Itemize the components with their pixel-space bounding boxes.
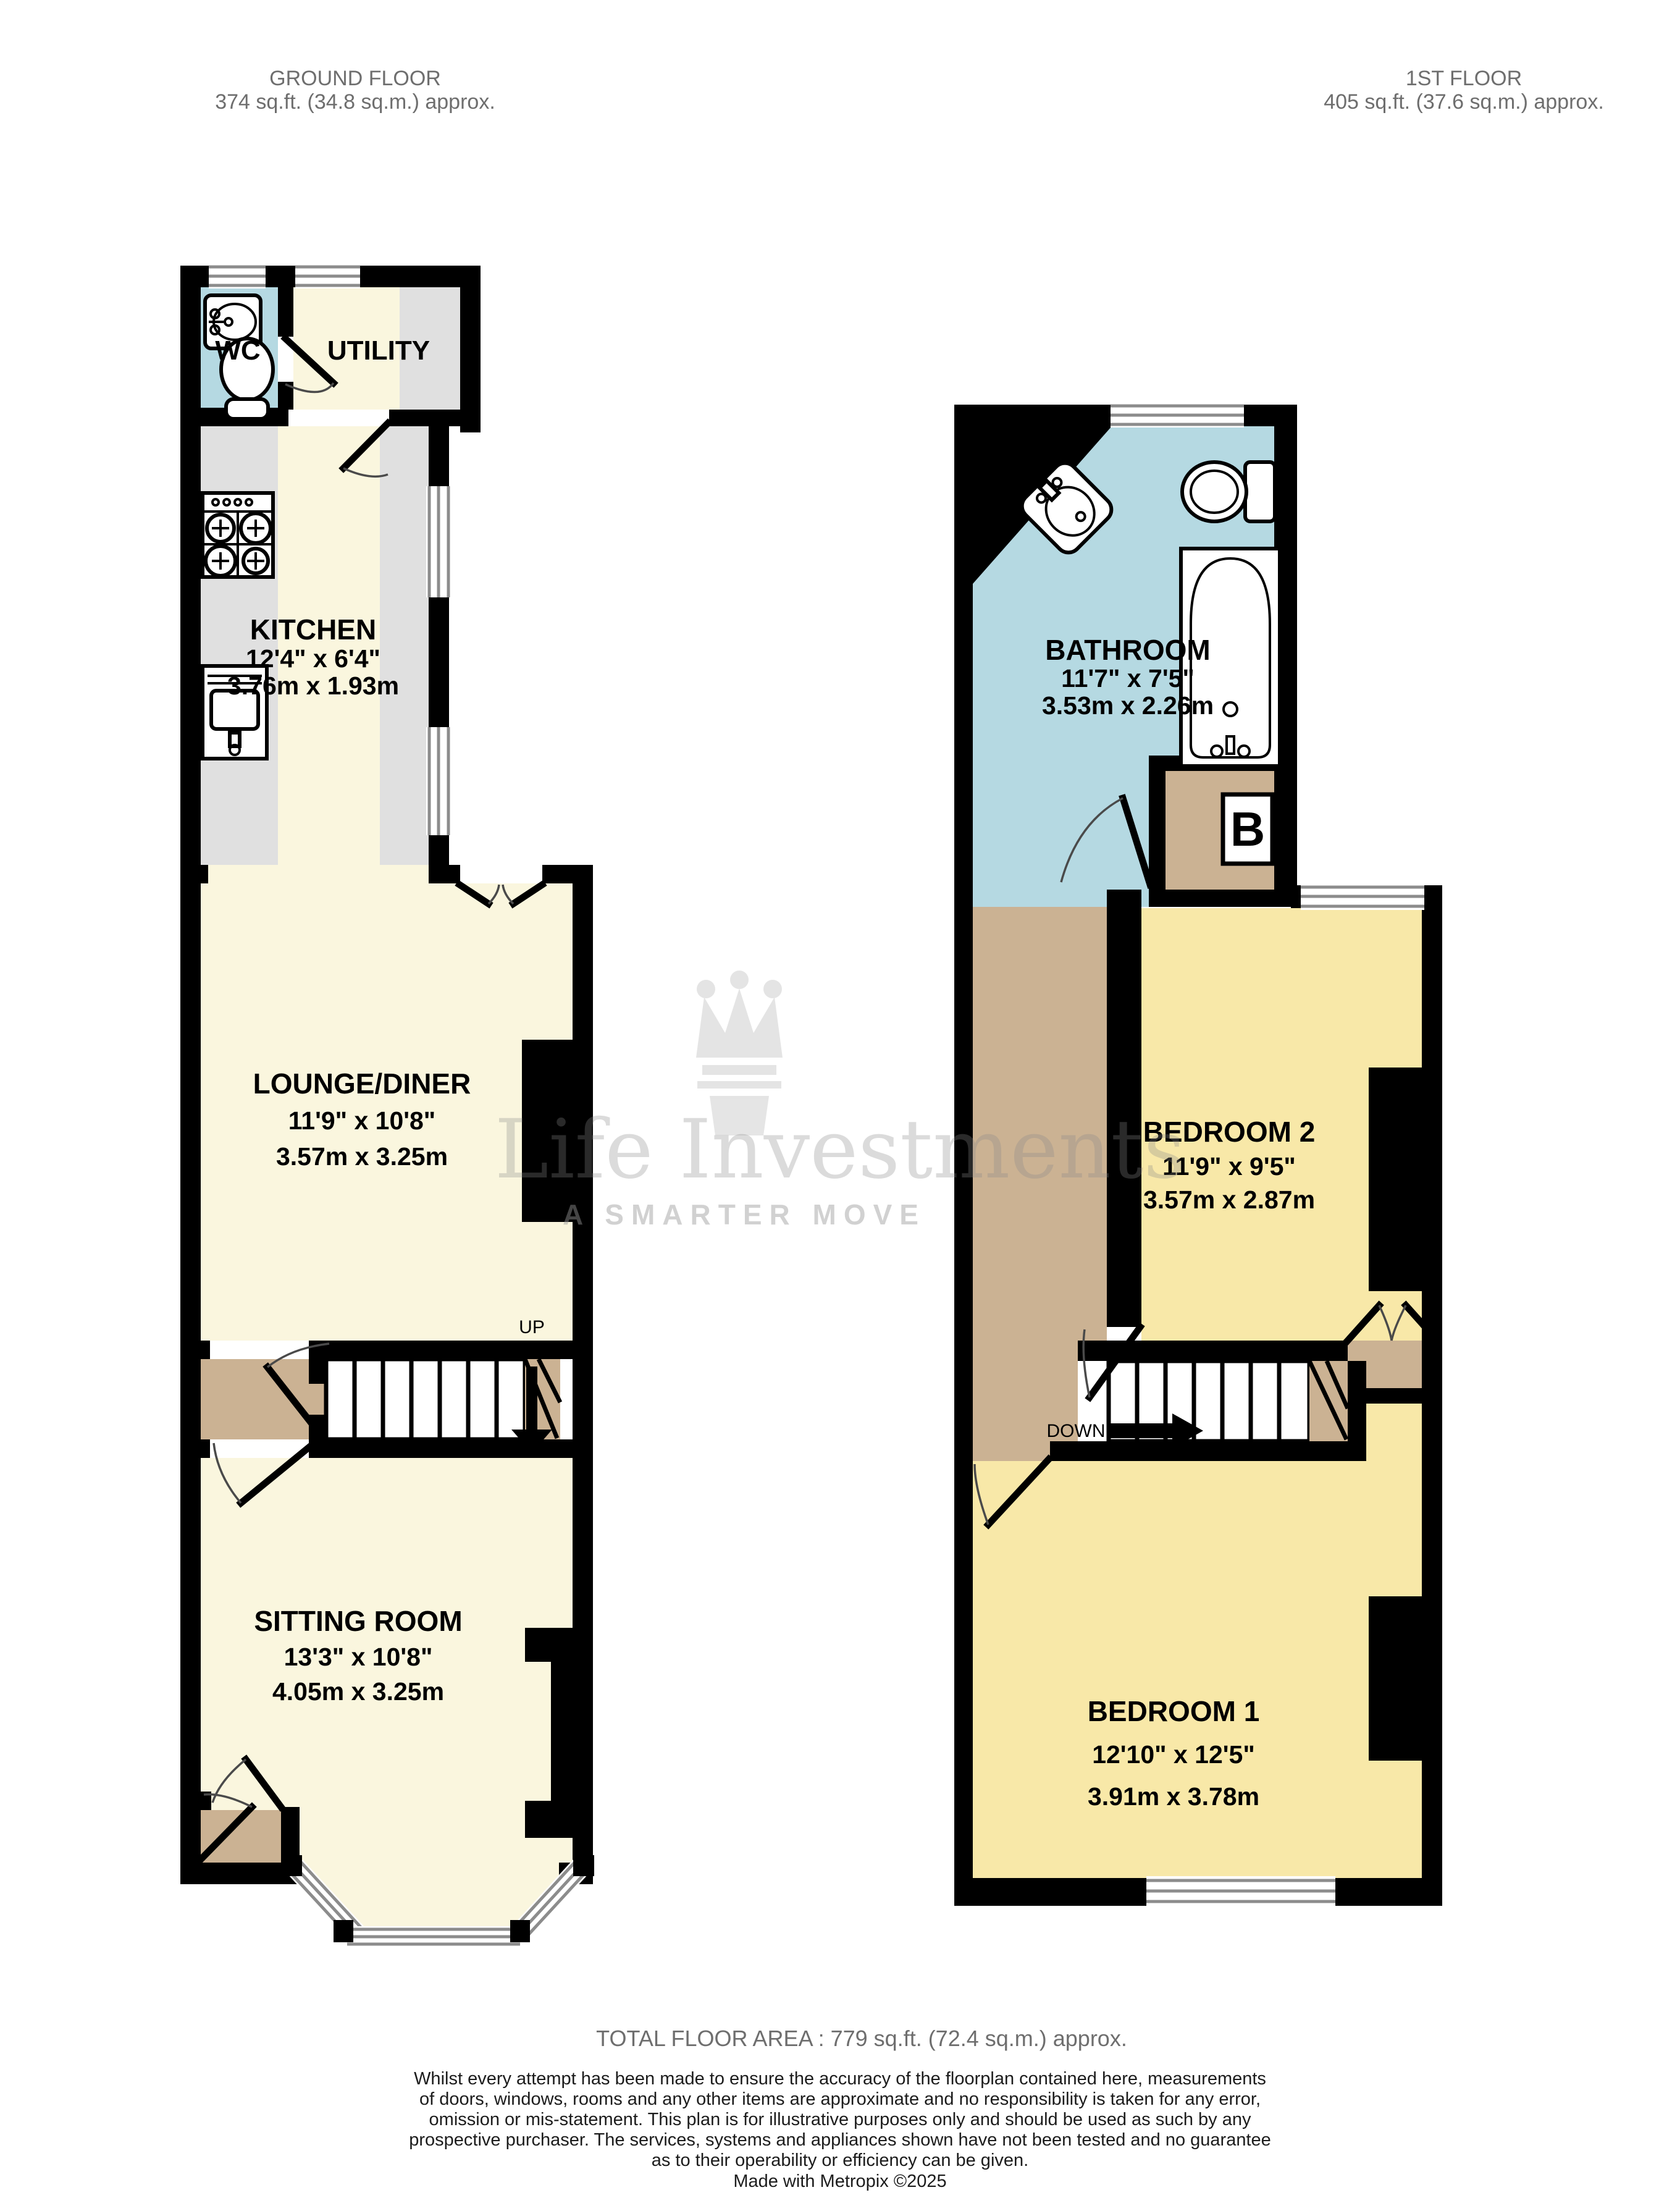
sitting-room-size-metric: 4.05m x 3.25m	[272, 1677, 444, 1706]
kitchen-label: KITCHEN	[250, 613, 376, 646]
total-floor-area: TOTAL FLOOR AREA : 779 sq.ft. (72.4 sq.m…	[596, 2026, 1127, 2051]
bedroom1-size-imperial: 12'10" x 12'5"	[1092, 1740, 1255, 1769]
lounge-diner-size-imperial: 11'9" x 10'8"	[288, 1106, 436, 1135]
kitchen-size-imperial: 12'4" x 6'4"	[246, 644, 380, 673]
first-floor-title: 1ST FLOOR	[1406, 67, 1522, 90]
bathroom-toilet-icon	[1182, 462, 1275, 521]
ground-floor-title: GROUND FLOOR	[269, 67, 441, 90]
wc-label: WC	[215, 335, 260, 366]
bedroom1-chimney-breast	[1369, 1596, 1422, 1761]
watermark-brand: Life Investments	[495, 1102, 1186, 1197]
stove-icon	[203, 493, 273, 577]
stairs-down-label: DOWN	[1047, 1421, 1106, 1441]
sitting-room-size-imperial: 13'3" x 10'8"	[284, 1643, 433, 1671]
sitting-room-label: SITTING ROOM	[254, 1605, 462, 1637]
kitchen-size-metric: 3.76m x 1.93m	[227, 672, 399, 700]
hall-floor	[201, 1359, 326, 1439]
footer: TOTAL FLOOR AREA : 779 sq.ft. (72.4 sq.m…	[409, 2026, 1271, 2191]
watermark-tagline: A SMARTER MOVE	[563, 1198, 926, 1231]
kitchen-lounge-junction	[201, 865, 429, 883]
stairs-up	[326, 1359, 560, 1453]
bedroom1-label: BEDROOM 1	[1088, 1695, 1260, 1727]
disclaimer-line: prospective purchaser. The services, sys…	[409, 2130, 1271, 2150]
disclaimer-line: Whilst every attempt has been made to en…	[414, 2069, 1266, 2089]
bedroom2-window	[1301, 883, 1424, 910]
first-floor-area: 405 sq.ft. (37.6 sq.m.) approx.	[1324, 90, 1604, 114]
floorplan-page: WC UTILITY KITCHEN 12'4" x 6'4" 3.76m x …	[0, 0, 1680, 2211]
stairs-down	[1109, 1361, 1348, 1448]
disclaimer-line: as to their operability or efficiency ca…	[652, 2150, 1028, 2170]
bathroom-size-imperial: 11'7" x 7'5"	[1061, 664, 1195, 693]
bedroom1-size-metric: 3.91m x 3.78m	[1088, 1782, 1259, 1811]
bedroom1-floor	[973, 1461, 1422, 1878]
bathroom-window	[1111, 403, 1244, 427]
utility-window	[295, 264, 360, 288]
lounge-diner-size-metric: 3.57m x 3.25m	[276, 1142, 448, 1171]
kitchen-window-lower	[426, 727, 451, 835]
bathroom-label: BATHROOM	[1045, 634, 1210, 666]
boiler-cupboard: B	[1223, 794, 1272, 864]
bathroom-floor-strip	[973, 756, 1149, 907]
metropix-credit: Made with Metropix ©2025	[733, 2171, 946, 2191]
bedroom2-chimney-breast	[1369, 1068, 1422, 1291]
kitchen-counter-right	[380, 426, 429, 865]
kitchen-window-upper	[426, 486, 451, 597]
wc-window	[209, 264, 266, 288]
sitting-room-chimney-breast	[525, 1628, 573, 1838]
lounge-diner-label: LOUNGE/DINER	[253, 1068, 471, 1100]
boiler-label: B	[1230, 802, 1265, 856]
disclaimer-line: of doors, windows, rooms and any other i…	[419, 2089, 1261, 2109]
bedroom1-arm-floor	[1366, 1404, 1422, 1461]
disclaimer-line: omission or mis-statement. This plan is …	[429, 2110, 1251, 2129]
plan-headers: GROUND FLOOR 374 sq.ft. (34.8 sq.m.) app…	[215, 67, 1604, 114]
ground-floor-area: 374 sq.ft. (34.8 sq.m.) approx.	[215, 90, 495, 114]
bedroom1-window	[1146, 1876, 1335, 1906]
utility-label: UTILITY	[327, 335, 430, 366]
bathroom-size-metric: 3.53m x 2.26m	[1042, 691, 1214, 720]
stairs-up-label: UP	[519, 1317, 545, 1337]
